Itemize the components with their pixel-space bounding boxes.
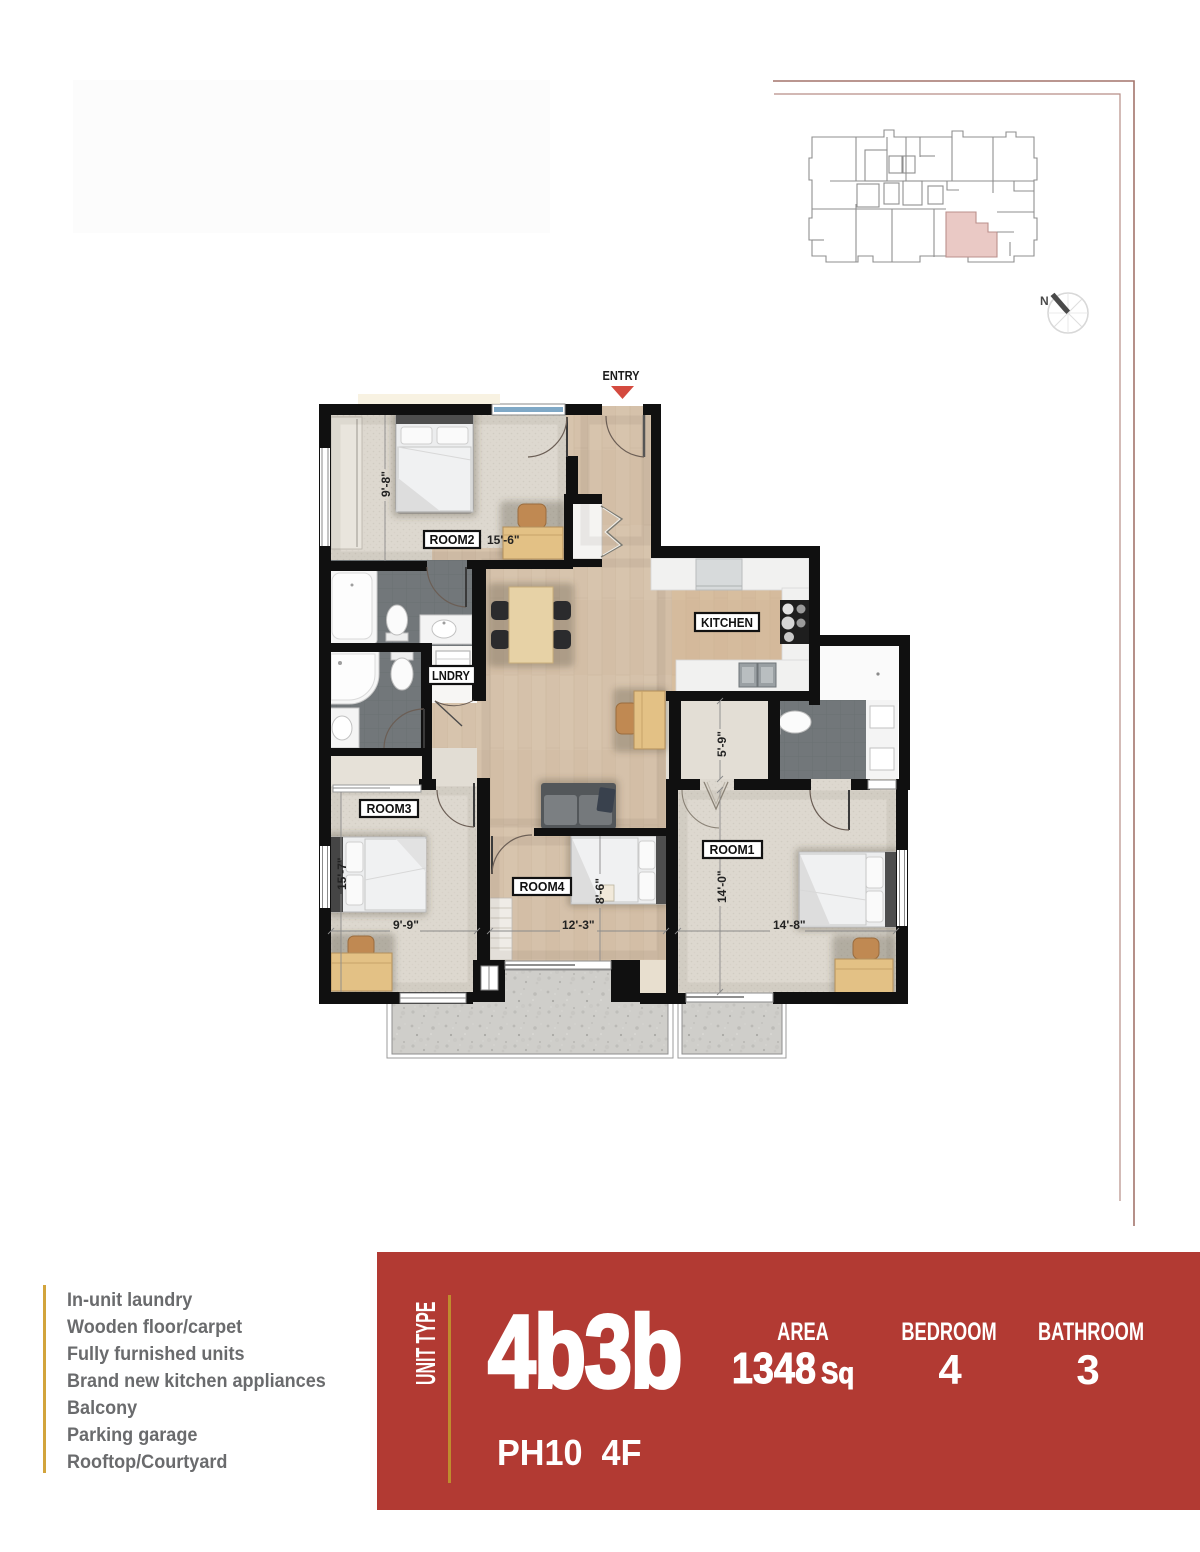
svg-text:N: N — [1040, 294, 1049, 308]
svg-text:8'-6": 8'-6" — [593, 878, 607, 904]
svg-text:15'-6": 15'-6" — [487, 533, 520, 547]
svg-text:9'-8": 9'-8" — [379, 471, 393, 497]
svg-text:5'-9": 5'-9" — [715, 731, 729, 757]
svg-text:14'-0": 14'-0" — [715, 870, 729, 903]
svg-text:LNDRY: LNDRY — [432, 669, 471, 683]
svg-text:15'-7": 15'-7" — [335, 857, 349, 890]
svg-text:ROOM2: ROOM2 — [430, 533, 475, 547]
svg-text:9'-9": 9'-9" — [393, 918, 419, 932]
svg-text:14'-8": 14'-8" — [773, 918, 806, 932]
svg-text:KITCHEN: KITCHEN — [701, 616, 753, 630]
svg-text:12'-3": 12'-3" — [562, 918, 595, 932]
svg-text:ENTRY: ENTRY — [603, 368, 640, 383]
svg-text:ROOM4: ROOM4 — [520, 880, 565, 894]
svg-text:ROOM1: ROOM1 — [710, 843, 755, 857]
svg-text:ROOM3: ROOM3 — [367, 802, 412, 816]
